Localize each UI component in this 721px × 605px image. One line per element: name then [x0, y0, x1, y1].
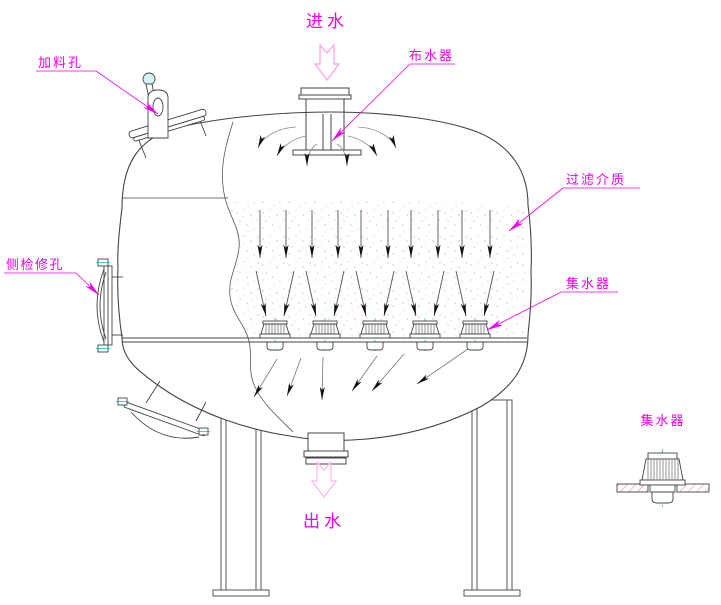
feed-port-label: 加料孔 — [38, 55, 83, 70]
outlet-flow-arrow — [312, 462, 336, 497]
collector-label: 集水器 — [566, 276, 611, 291]
collector-detail — [617, 449, 709, 507]
filter-media-label: 过滤介质 — [566, 172, 626, 187]
filter-media-stipple — [226, 201, 526, 337]
outlet-label: 出水 — [303, 512, 345, 531]
distributor-label: 布水器 — [409, 48, 454, 63]
side-port-label: 侧检修孔 — [6, 257, 64, 272]
outlet-nozzle — [304, 433, 348, 464]
inlet-label: 进水 — [306, 12, 348, 31]
drawing-canvas: 进水 加料孔 布水器 过滤介质 集水器 侧检修孔 出水 集水器 — [0, 0, 721, 605]
inlet-flow-arrow — [315, 45, 339, 80]
inlet-nozzle — [299, 88, 351, 114]
filter-tank-diagram: 进水 加料孔 布水器 过滤介质 集水器 侧检修孔 出水 集水器 — [0, 0, 721, 605]
collector-detail-label: 集水器 — [640, 413, 685, 428]
